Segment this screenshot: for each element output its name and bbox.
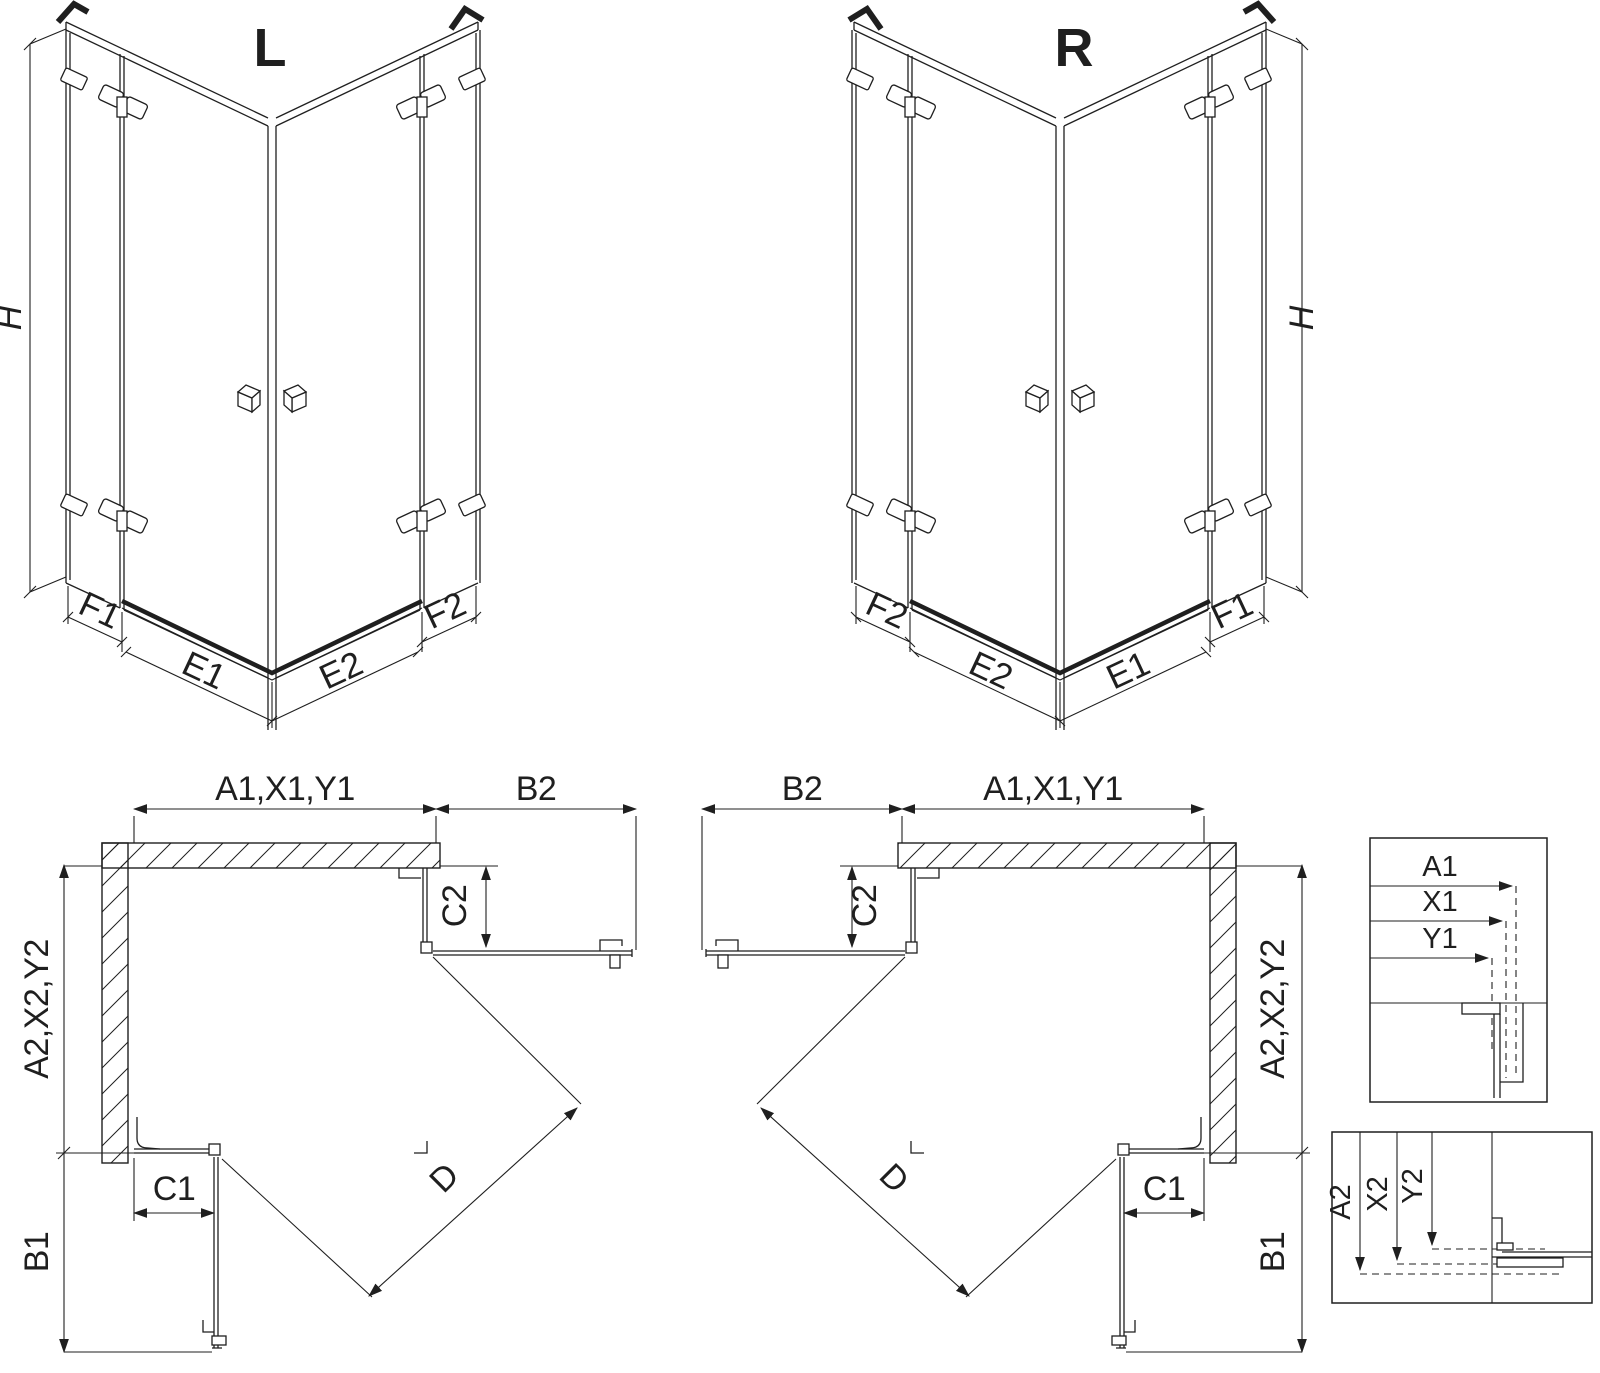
plan-l-dim-b2-label: B2	[516, 770, 557, 808]
wall-left	[102, 843, 128, 1163]
view-l-title: L	[254, 18, 287, 78]
closed-door-corner-mark	[911, 1141, 924, 1153]
dim-line-d	[761, 1108, 969, 1296]
detail-box-horizontal-measures: A1 X1 Y1	[1370, 838, 1547, 1102]
plan-l-dim-b1-label: B1	[18, 1232, 56, 1273]
view-l-dim-f2-label: F2	[418, 584, 472, 637]
plan-l-dim-c2-label: C2	[436, 885, 474, 927]
detail-box-vertical-measures: A2 X2 Y2	[1325, 1132, 1592, 1303]
closed-door-corner-mark	[414, 1141, 427, 1153]
detail-y1-label: Y1	[1422, 923, 1457, 955]
plan-view-right: A1,X1,Y1 B2 C2 A2,X2,Y2 B1 C1 D	[702, 770, 1310, 1352]
view-r-dim-f1-label: F1	[1205, 584, 1259, 637]
wall-top	[898, 843, 1236, 868]
detail-y2-label: Y2	[1397, 1168, 1429, 1203]
plan-r-dim-a1-label: A1,X1,Y1	[983, 770, 1123, 808]
door-handle	[212, 1336, 226, 1345]
hinge-pivot	[421, 942, 432, 953]
technical-drawing: L H F1 E1 E2 F2 R H F2 E2 E1 F1	[0, 0, 1600, 1373]
view-l-dim-f1-label: F1	[73, 584, 127, 637]
view-r-dim-e2-label: E2	[963, 644, 1018, 697]
plan-r-dim-b2-label: B2	[782, 770, 823, 808]
door-handle	[1124, 1320, 1135, 1332]
detail-a2-label: A2	[1325, 1184, 1357, 1219]
view-l-dim-h-label: H	[0, 305, 29, 330]
drawing-canvas: L H F1 E1 E2 F2 R H F2 E2 E1 F1	[0, 0, 1600, 1373]
door-handle	[718, 955, 728, 968]
fixed-panel-bottom	[1124, 1149, 1204, 1153]
open-door-left	[706, 949, 905, 957]
fixed-panel-right	[423, 868, 427, 949]
wall-profile-section	[1462, 1003, 1500, 1014]
plan-view-left: A1,X1,Y1 B2 C2 A2,X2,Y2 B1 C1 D	[18, 770, 636, 1352]
wall-right	[1210, 843, 1236, 1163]
plan-r-dim-a2-label: A2,X2,Y2	[1254, 939, 1292, 1079]
view-l-dim-e2-label: E2	[313, 644, 368, 697]
plan-l-dim-a2-label: A2,X2,Y2	[18, 939, 56, 1079]
open-door-right	[433, 949, 632, 957]
view-r-dim-h-label: H	[1283, 305, 1321, 330]
open-door-bottom	[212, 1157, 222, 1348]
door-handle	[610, 955, 620, 968]
glass-section	[1494, 1014, 1500, 1098]
view-r-title: R	[1055, 18, 1094, 78]
door-handle	[600, 940, 622, 951]
detail-a1-label: A1	[1422, 851, 1457, 883]
hinge-pivot	[209, 1144, 220, 1155]
perspective-view-right: R H F2 E2 E1 F1	[846, 4, 1321, 730]
plan-r-dim-d-label: D	[872, 1156, 916, 1200]
detail-x2-label: X2	[1362, 1176, 1394, 1211]
plan-l-dim-a1-label: A1,X1,Y1	[215, 770, 355, 808]
plan-r-dim-c2-label: C2	[846, 885, 884, 927]
view-r-dim-f2-label: F2	[860, 584, 914, 637]
plan-l-dim-d-label: D	[422, 1156, 466, 1200]
dim-line-d	[369, 1108, 577, 1296]
glass-clamp-section	[1497, 1243, 1513, 1250]
hinge-pivot	[906, 942, 917, 953]
open-door-bottom	[1116, 1157, 1126, 1348]
hinge-pivot	[1118, 1144, 1129, 1155]
door-handle	[203, 1320, 214, 1332]
perspective-view-left: L H F1 E1 E2 F2	[0, 4, 486, 730]
fixed-panel-left	[911, 868, 915, 949]
door-handle	[1112, 1336, 1126, 1345]
fixed-panel-bottom	[134, 1149, 214, 1153]
detail-x1-label: X1	[1422, 886, 1457, 918]
door-handle	[716, 940, 738, 951]
wall-top	[102, 843, 440, 868]
plan-r-dim-c1-label: C1	[1143, 1170, 1185, 1208]
plan-r-dim-b1-label: B1	[1254, 1232, 1292, 1273]
plan-l-dim-c1-label: C1	[153, 1170, 195, 1208]
tray-profile-section	[1492, 1252, 1592, 1257]
